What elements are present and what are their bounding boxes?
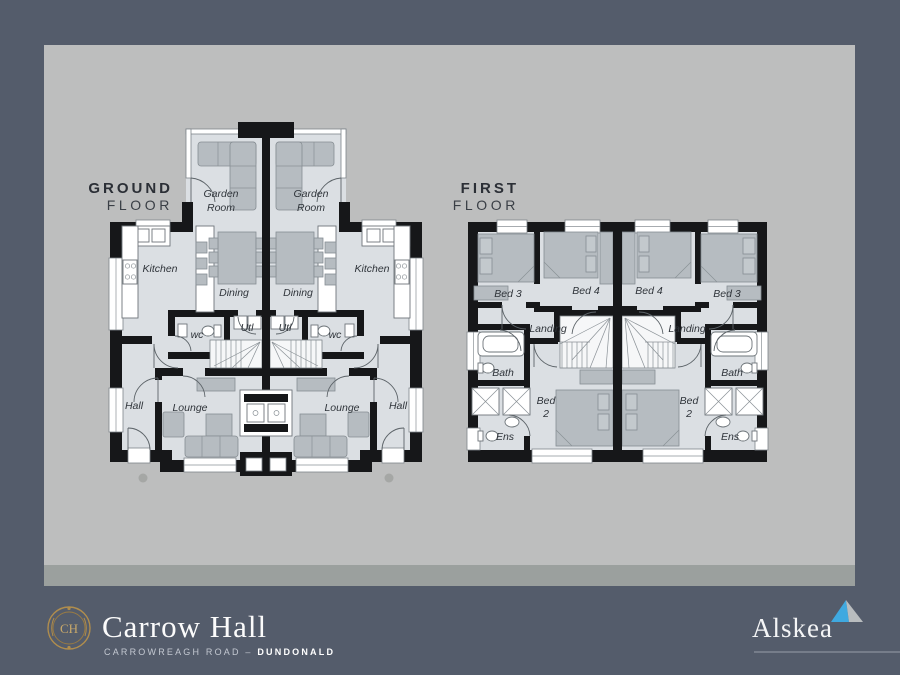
- alskea-triangle-icon: [827, 598, 867, 624]
- room-label-wc: wc: [191, 329, 205, 341]
- developer-logo-text: Alskea: [752, 613, 833, 644]
- room-label-garden-room: Room: [297, 202, 325, 214]
- panel-bottom-shadow: [44, 565, 855, 586]
- ground-floor-plan: Garden Room Kitchen Dining wc Utl Hall L…: [85, 110, 445, 500]
- room-label-lounge: Lounge: [172, 402, 207, 414]
- room-label-lounge: Lounge: [324, 402, 359, 414]
- room-label-hall: Hall: [125, 400, 144, 412]
- room-label-landing: Landing: [668, 323, 706, 335]
- room-label-dining: Dining: [283, 287, 313, 299]
- brand-address: CARROWREAGH ROAD – DUNDONALD: [104, 647, 335, 657]
- developer-logo-rule: [754, 651, 900, 653]
- room-label-dining: Dining: [219, 287, 249, 299]
- room-label-utility: Utl: [241, 322, 255, 334]
- address-town: DUNDONALD: [257, 647, 335, 657]
- room-label-hall: Hall: [389, 400, 408, 412]
- room-label-ensuite: Ens: [496, 431, 515, 443]
- room-label-garden-room: Garden: [293, 188, 328, 200]
- room-label-bath: Bath: [492, 367, 514, 379]
- room-label-utility: Utl: [279, 322, 293, 334]
- room-label-kitchen: Kitchen: [354, 263, 389, 275]
- room-label-bed2: 2: [542, 408, 549, 420]
- room-label-kitchen: Kitchen: [142, 263, 177, 275]
- site-dot-left: [139, 474, 148, 483]
- room-label-garden-room: Room: [207, 202, 235, 214]
- svg-text:CH: CH: [60, 621, 78, 636]
- first-floor-plan: Bed 3 Bed 4 Landing Bath Ens Bed 2 Bed 3…: [455, 165, 785, 485]
- brand-logo-text: Carrow Hall: [102, 609, 267, 645]
- room-label-bed3: Bed 3: [494, 288, 522, 300]
- room-label-bath: Bath: [721, 367, 743, 379]
- address-road: CARROWREAGH ROAD: [104, 647, 241, 657]
- room-label-wc: wc: [329, 329, 343, 341]
- room-label-bed3: Bed 3: [713, 288, 741, 300]
- page: GROUND FLOOR FIRST FLOOR: [0, 0, 900, 675]
- room-label-bed2: 2: [685, 408, 692, 420]
- address-separator: –: [245, 647, 252, 657]
- room-label-bed2: Bed: [680, 395, 700, 407]
- room-label-bed2: Bed: [537, 395, 557, 407]
- carrow-hall-crest-icon: CH: [45, 603, 93, 653]
- room-label-landing: Landing: [529, 323, 567, 335]
- room-label-bed4: Bed 4: [635, 285, 663, 297]
- site-dot-right: [385, 474, 394, 483]
- room-label-bed4: Bed 4: [572, 285, 600, 297]
- room-label-ensuite: Ens: [721, 431, 740, 443]
- room-label-garden-room: Garden: [203, 188, 238, 200]
